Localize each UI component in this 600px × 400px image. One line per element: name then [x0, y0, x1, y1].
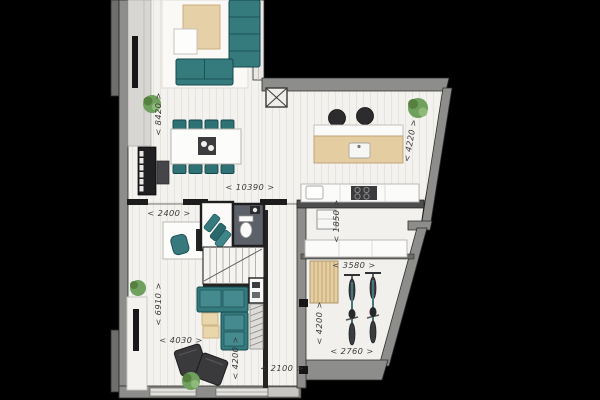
dim-lounge-depth: < 6910 >	[153, 282, 163, 326]
dim-sitting-area-depth: < 4200 >	[230, 336, 240, 380]
potted-plant	[408, 98, 428, 118]
ottoman	[202, 313, 218, 325]
exterior-ledge-bottom-left	[111, 330, 119, 392]
pantry-counter	[305, 240, 407, 257]
hall-wall-segment-1	[127, 199, 148, 205]
dim-storage-depth: < 4200 >	[314, 301, 324, 345]
bar-stool	[329, 110, 346, 127]
ottoman	[203, 326, 219, 338]
fireplace	[132, 36, 138, 88]
exterior-ledge-top-left	[111, 0, 119, 96]
toilet	[240, 222, 252, 237]
counter-sink	[306, 186, 323, 199]
toilet-tank	[239, 216, 253, 222]
dim-lounge-width: < 4030 >	[159, 335, 203, 345]
hall-cabinet	[249, 278, 264, 303]
potted-plant	[130, 280, 146, 296]
bar-stool	[357, 108, 374, 125]
island-counter-top	[314, 125, 403, 136]
dim-storage-bottom-width: < 2760 >	[330, 346, 374, 356]
storage-bottom-wall	[301, 360, 388, 380]
piano-bench	[157, 161, 169, 184]
dim-overall-width: < 10390 >	[225, 182, 274, 192]
wall-pier-1	[299, 299, 308, 307]
side-table	[174, 29, 197, 54]
kitchen-top-wall	[262, 78, 449, 91]
floorplan: < 8420 > < 10390 > < 2400 > < 4220 > < 1…	[0, 0, 600, 400]
potted-plant	[182, 372, 200, 390]
front-door-threshold	[268, 387, 299, 397]
dim-storage-width: < 3580 >	[332, 260, 376, 270]
tv	[133, 309, 139, 351]
dim-hall-width: < 2400 >	[147, 208, 191, 218]
corridor-right-wall	[297, 203, 306, 388]
wall-cabinet	[128, 0, 151, 146]
floorplan-canvas: < 8420 > < 10390 > < 2400 > < 4220 > < 1…	[0, 0, 600, 400]
dining-area	[171, 120, 241, 174]
dim-pantry-depth: < 1850 >	[331, 199, 341, 243]
table-centerpiece	[198, 137, 216, 155]
radiator	[250, 304, 263, 349]
dim-corridor-width: < 2100 >	[260, 363, 304, 373]
dim-living-room-depth: < 8420 >	[153, 92, 163, 136]
chaise-sofa	[229, 0, 260, 67]
